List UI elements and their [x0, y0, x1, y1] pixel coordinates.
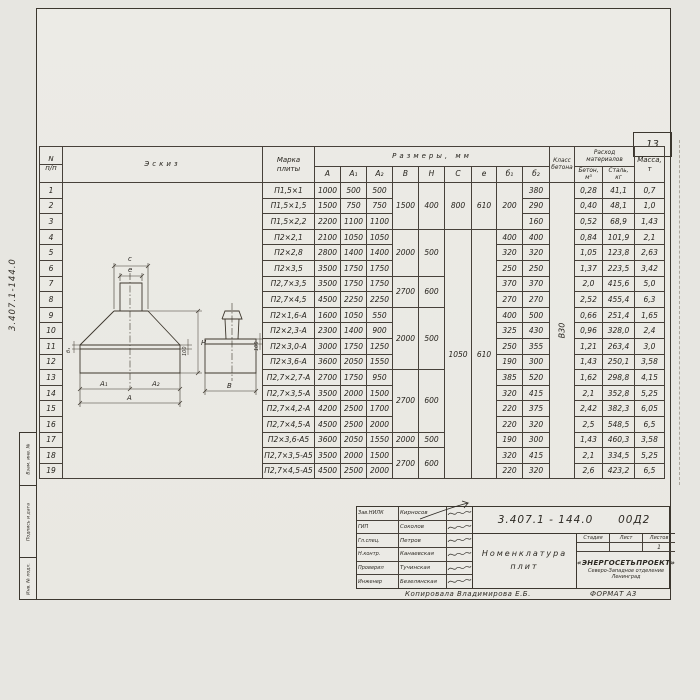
table-cell: П2,7×3,5: [263, 276, 315, 292]
table-cell: 1750: [341, 370, 367, 386]
table-cell: 610: [472, 183, 497, 230]
table-cell: 400: [497, 229, 523, 245]
table-cell: 2000: [393, 229, 419, 276]
table-cell: 1,37: [575, 260, 603, 276]
table-cell: 250: [497, 338, 523, 354]
table-cell: 4500: [315, 416, 341, 432]
table-cell: 1100: [341, 214, 367, 230]
org-name: «ЭНЕРГОСЕТЬПРОЕКТ»: [577, 559, 675, 568]
table-cell: 4200: [315, 401, 341, 417]
table-cell: 4: [40, 229, 63, 245]
table-cell: 320: [497, 448, 523, 464]
table-cell: 3500: [315, 385, 341, 401]
table-row: 1П1,5×110005005001500400800610200380В300…: [40, 183, 665, 199]
table-cell: 2500: [341, 401, 367, 417]
table-cell: 250: [497, 260, 523, 276]
table-cell: 263,4: [603, 338, 635, 354]
table-cell: 1: [40, 183, 63, 199]
table-cell: 16: [40, 416, 63, 432]
col-header-b1: б₁: [497, 167, 523, 183]
table-cell: 11: [40, 338, 63, 354]
table-cell: 7: [40, 276, 63, 292]
table-cell: 5: [40, 245, 63, 261]
table-cell: 328,0: [603, 323, 635, 339]
table-cell: 2,5: [575, 416, 603, 432]
table-cell: 2500: [341, 463, 367, 479]
table-cell: 2800: [315, 245, 341, 261]
table-cell: 2250: [367, 292, 393, 308]
personnel-row: ИнженерБезелянская: [357, 575, 472, 588]
table-cell: П2,7×2,7-А: [263, 370, 315, 386]
table-cell: 190: [497, 354, 523, 370]
table-cell: П2,7×4,2-А: [263, 401, 315, 417]
table-cell: 2200: [315, 214, 341, 230]
table-cell: 500: [419, 432, 445, 448]
col-header-klass: Класс бетона: [550, 147, 575, 183]
table-cell: 500: [341, 183, 367, 199]
table-cell: 3,58: [635, 354, 665, 370]
table-cell: 5,0: [635, 276, 665, 292]
col-header-b2: б₂: [523, 167, 550, 183]
table-cell: 3,0: [635, 338, 665, 354]
table-cell: 1500: [367, 385, 393, 401]
table-cell: 2,42: [575, 401, 603, 417]
table-cell: 3500: [315, 260, 341, 276]
col-header-rashod: Расход материалов: [575, 147, 635, 167]
table-cell: 1,62: [575, 370, 603, 386]
table-cell: 320: [497, 245, 523, 261]
table-cell: 0,40: [575, 198, 603, 214]
table-cell: П2,7×4,5-А: [263, 416, 315, 432]
table-cell: 4500: [315, 292, 341, 308]
table-cell: 600: [419, 276, 445, 307]
stage-col-stadia: Стадия: [577, 534, 610, 551]
table-cell: 48,1: [603, 198, 635, 214]
table-cell: 1700: [367, 401, 393, 417]
table-cell: 455,4: [603, 292, 635, 308]
personnel-row: ГИПСоколов: [357, 521, 472, 535]
table-cell: 3,42: [635, 260, 665, 276]
table-cell: 2: [40, 198, 63, 214]
table-cell: 334,5: [603, 448, 635, 464]
col-header-e: е: [472, 167, 497, 183]
table-cell: 1,65: [635, 307, 665, 323]
table-cell: 375: [523, 401, 550, 417]
table-cell: 0,84: [575, 229, 603, 245]
table-cell: 320: [523, 416, 550, 432]
col-header-a2: А₂: [367, 167, 393, 183]
table-cell: 5,25: [635, 448, 665, 464]
table-cell: 0,52: [575, 214, 603, 230]
signature-scribble: [447, 534, 472, 547]
table-cell: 2050: [341, 432, 367, 448]
table-cell: 1500: [367, 448, 393, 464]
table-cell: 4,15: [635, 370, 665, 386]
table-cell: 3600: [315, 432, 341, 448]
table-cell: 1050: [445, 229, 472, 479]
table-cell: 8: [40, 292, 63, 308]
table-cell: П2,7×3,5-А5: [263, 448, 315, 464]
table-cell: 548,5: [603, 416, 635, 432]
table-cell: П2,7×4,5-А5: [263, 463, 315, 479]
table-cell: 2,1: [575, 448, 603, 464]
table-cell: 3500: [315, 276, 341, 292]
table-cell: 2000: [341, 385, 367, 401]
table-cell: 1050: [341, 307, 367, 323]
col-header-num: N п/п: [40, 147, 63, 183]
table-cell: 10: [40, 323, 63, 339]
table-cell: 2000: [341, 448, 367, 464]
table-cell: 380: [523, 183, 550, 199]
margin-doc-number: 3.407.1-144.0: [6, 235, 20, 355]
table-cell: П2×3,5: [263, 260, 315, 276]
table-cell: 2700: [315, 370, 341, 386]
signature-scribble: [447, 575, 472, 588]
plates-table-body: 1П1,5×110005005001500400800610200380В300…: [40, 183, 665, 479]
table-cell: 370: [523, 276, 550, 292]
col-header-a: А: [315, 167, 341, 183]
table-cell: 550: [367, 307, 393, 323]
table-cell: 3600: [315, 354, 341, 370]
table-cell: 1250: [367, 338, 393, 354]
table-cell: 600: [419, 448, 445, 479]
col-header-razmery: Размеры, мм: [315, 147, 550, 167]
table-cell: 300: [523, 432, 550, 448]
table-cell: 500: [523, 307, 550, 323]
table-cell: 6,5: [635, 416, 665, 432]
col-header-massa: Масса, т: [635, 147, 665, 183]
table-cell: 352,8: [603, 385, 635, 401]
table-cell: 500: [367, 183, 393, 199]
table-cell: 600: [419, 370, 445, 432]
personnel-row: Н.контр.Канаевская: [357, 548, 472, 562]
table-cell: 423,2: [603, 463, 635, 479]
table-cell: 270: [523, 292, 550, 308]
table-cell: 251,4: [603, 307, 635, 323]
table-cell: 2250: [341, 292, 367, 308]
personnel-role: Н.контр.: [357, 548, 399, 561]
table-cell: 270: [497, 292, 523, 308]
table-cell: 1,21: [575, 338, 603, 354]
stamp-inv: Инв. № подл.: [20, 558, 37, 599]
personnel-name: Петров: [399, 534, 447, 547]
table-cell: 6,5: [635, 463, 665, 479]
table-cell: 1,43: [575, 354, 603, 370]
col-header-beton: Бетон, м³: [575, 167, 603, 183]
table-cell: 1400: [341, 323, 367, 339]
table-cell: 6,05: [635, 401, 665, 417]
table-cell: 750: [367, 198, 393, 214]
table-cell: 19: [40, 463, 63, 479]
table-cell: 1000: [315, 183, 341, 199]
table-cell: 610: [472, 229, 497, 479]
table-cell: П2×3,6-А: [263, 354, 315, 370]
col-header-stal: Сталь, кг: [603, 167, 635, 183]
table-cell: 17: [40, 432, 63, 448]
table-cell: 1100: [367, 214, 393, 230]
table-cell: 325: [497, 323, 523, 339]
table-cell: 2,6: [575, 463, 603, 479]
personnel-role: Гл.спец.: [357, 534, 399, 547]
table-cell: 3500: [315, 448, 341, 464]
table-cell: П2,7×3,5-А: [263, 385, 315, 401]
personnel-role: Проверил: [357, 562, 399, 575]
table-cell: 190: [497, 432, 523, 448]
table-cell: 2000: [367, 416, 393, 432]
drawing-title: Номенклатура плит: [473, 534, 577, 588]
personnel-row: Гл.спец.Петров: [357, 534, 472, 548]
table-cell: 18: [40, 448, 63, 464]
sketch-cell: [63, 183, 263, 479]
table-cell: 220: [497, 401, 523, 417]
doc-suffix: 00Д2: [618, 514, 650, 526]
table-cell: 415: [523, 385, 550, 401]
table-cell: 3: [40, 214, 63, 230]
org-city: Ленинград: [612, 574, 641, 580]
col-header-c: С: [445, 167, 472, 183]
signature-scribble: [447, 562, 472, 575]
table-cell: 2,63: [635, 245, 665, 261]
table-cell: 223,5: [603, 260, 635, 276]
personnel-name: Соколов: [399, 521, 447, 534]
signature-scribble: [447, 521, 472, 534]
col-header-h: Н: [419, 167, 445, 183]
table-cell: 41,1: [603, 183, 635, 199]
footer-copier: Копировала Владимирова Е.Б.: [405, 590, 531, 598]
table-cell: 1400: [341, 245, 367, 261]
table-cell: П2×2,3-А: [263, 323, 315, 339]
table-cell: 250: [523, 260, 550, 276]
table-cell: 0,96: [575, 323, 603, 339]
doc-number-band: 3.407.1 - 144.0 00Д2: [473, 507, 675, 534]
table-cell: П1,5×1,5: [263, 198, 315, 214]
table-cell: 123,8: [603, 245, 635, 261]
table-cell: 6,3: [635, 292, 665, 308]
table-cell: 1400: [367, 245, 393, 261]
table-cell: 13: [40, 370, 63, 386]
table-cell: 220: [497, 416, 523, 432]
personnel-name: Тучинская: [399, 562, 447, 575]
personnel-role: ГИП: [357, 521, 399, 534]
table-cell: 1050: [367, 229, 393, 245]
table-cell: 1750: [341, 260, 367, 276]
table-cell: 355: [523, 338, 550, 354]
table-cell: 2300: [315, 323, 341, 339]
table-cell: 1050: [341, 229, 367, 245]
table-cell: 298,8: [603, 370, 635, 386]
table-cell: 1750: [367, 276, 393, 292]
table-cell: В30: [550, 183, 575, 479]
stage-grid: Стадия Лист Листов 1: [577, 534, 675, 552]
table-cell: 320: [523, 463, 550, 479]
table-cell: П2×1,6-А: [263, 307, 315, 323]
table-cell: 6: [40, 260, 63, 276]
table-cell: 14: [40, 385, 63, 401]
table-cell: 460,3: [603, 432, 635, 448]
table-cell: 500: [419, 307, 445, 369]
table-cell: 950: [367, 370, 393, 386]
table-cell: 415: [523, 448, 550, 464]
table-cell: 2000: [367, 463, 393, 479]
table-cell: 1550: [367, 432, 393, 448]
table-cell: 2,1: [575, 385, 603, 401]
table-cell: 9: [40, 307, 63, 323]
personnel-table: Зав.НИЛККирносовГИПСоколовГл.спец.Петров…: [357, 507, 473, 588]
table-cell: 0,66: [575, 307, 603, 323]
table-cell: 0,7: [635, 183, 665, 199]
footer-format: ФОРМАТ А3: [590, 590, 637, 598]
table-cell: П2×3,6-А5: [263, 432, 315, 448]
table-cell: 1,05: [575, 245, 603, 261]
stamp-podpis: Подпись и дата: [20, 486, 37, 558]
table-cell: 2,52: [575, 292, 603, 308]
title-block: Зав.НИЛККирносовГИПСоколовГл.спец.Петров…: [356, 506, 670, 589]
personnel-row: ПроверилТучинская: [357, 562, 472, 576]
table-cell: 2000: [393, 307, 419, 369]
table-cell: 320: [497, 385, 523, 401]
col-header-sketch: Эскиз: [63, 147, 263, 183]
table-cell: 2000: [393, 432, 419, 448]
table-cell: 1,43: [575, 432, 603, 448]
table-cell: 1,43: [635, 214, 665, 230]
personnel-role: Зав.НИЛК: [357, 507, 399, 520]
col-header-a1: А₁: [341, 167, 367, 183]
table-cell: П2×3,0-А: [263, 338, 315, 354]
table-cell: 1500: [393, 183, 419, 230]
signature-scribble: [447, 548, 472, 561]
table-cell: П1,5×2,2: [263, 214, 315, 230]
table-cell: 1750: [341, 338, 367, 354]
doc-number: 3.407.1 - 144.0: [498, 514, 594, 526]
table-cell: 2100: [315, 229, 341, 245]
table-cell: 1600: [315, 307, 341, 323]
table-cell: 750: [341, 198, 367, 214]
table-cell: 3000: [315, 338, 341, 354]
table-cell: 1550: [367, 354, 393, 370]
table-cell: 2500: [341, 416, 367, 432]
table-cell: 2700: [393, 370, 419, 432]
table-cell: 2700: [393, 276, 419, 307]
sheet: 13 N п/п Эскиз Марка плиты: [36, 8, 671, 600]
col-header-marka: Марка плиты: [263, 147, 315, 183]
table-cell: 1750: [367, 260, 393, 276]
plates-table: N п/п Эскиз Марка плиты Размеры, мм Клас…: [39, 146, 665, 479]
personnel-name: Безелянская: [399, 575, 447, 588]
table-cell: 220: [497, 463, 523, 479]
table-cell: 385: [497, 370, 523, 386]
table-cell: 1,0: [635, 198, 665, 214]
table-cell: 3,58: [635, 432, 665, 448]
table-cell: 400: [419, 183, 445, 230]
table-cell: 15: [40, 401, 63, 417]
table-cell: 160: [523, 214, 550, 230]
table-cell: П2,7×4,5: [263, 292, 315, 308]
table-header: N п/п Эскиз Марка плиты Размеры, мм Клас…: [40, 147, 665, 183]
table-cell: П2×2,1: [263, 229, 315, 245]
col-header-b: В: [393, 167, 419, 183]
table-cell: 400: [497, 307, 523, 323]
table-cell: 0,28: [575, 183, 603, 199]
table-cell: 250,1: [603, 354, 635, 370]
table-cell: 500: [419, 229, 445, 276]
personnel-name: Канаевская: [399, 548, 447, 561]
table-cell: 415,6: [603, 276, 635, 292]
table-cell: 68,9: [603, 214, 635, 230]
table-cell: 800: [445, 183, 472, 230]
table-cell: 1750: [341, 276, 367, 292]
stage-col-list: Лист: [610, 534, 643, 551]
table-cell: П2×2,8: [263, 245, 315, 261]
table-cell: 400: [523, 229, 550, 245]
table-cell: 5,25: [635, 385, 665, 401]
signature-flourish: [418, 499, 478, 521]
table-cell: 430: [523, 323, 550, 339]
table-cell: 290: [523, 198, 550, 214]
table-cell: 370: [497, 276, 523, 292]
stamp-vzam: Взам. инв. №: [20, 433, 37, 486]
table-cell: 300: [523, 354, 550, 370]
stage-col-listov: Листов 1: [643, 534, 675, 551]
table-cell: 320: [523, 245, 550, 261]
organization: «ЭНЕРГОСЕТЬПРОЕКТ» Северо-Западное отдел…: [577, 552, 675, 588]
table-cell: П1,5×1: [263, 183, 315, 199]
scan-artifact-line: [679, 140, 680, 485]
table-cell: 101,9: [603, 229, 635, 245]
table-cell: 200: [497, 183, 523, 230]
table-cell: 1500: [315, 198, 341, 214]
table-cell: 900: [367, 323, 393, 339]
table-cell: 520: [523, 370, 550, 386]
table-cell: 2,4: [635, 323, 665, 339]
personnel-role: Инженер: [357, 575, 399, 588]
table-cell: 4500: [315, 463, 341, 479]
table-cell: 2,0: [575, 276, 603, 292]
table-cell: 2,1: [635, 229, 665, 245]
table-cell: 2700: [393, 448, 419, 479]
table-cell: 12: [40, 354, 63, 370]
table-cell: 2050: [341, 354, 367, 370]
table-cell: 382,3: [603, 401, 635, 417]
